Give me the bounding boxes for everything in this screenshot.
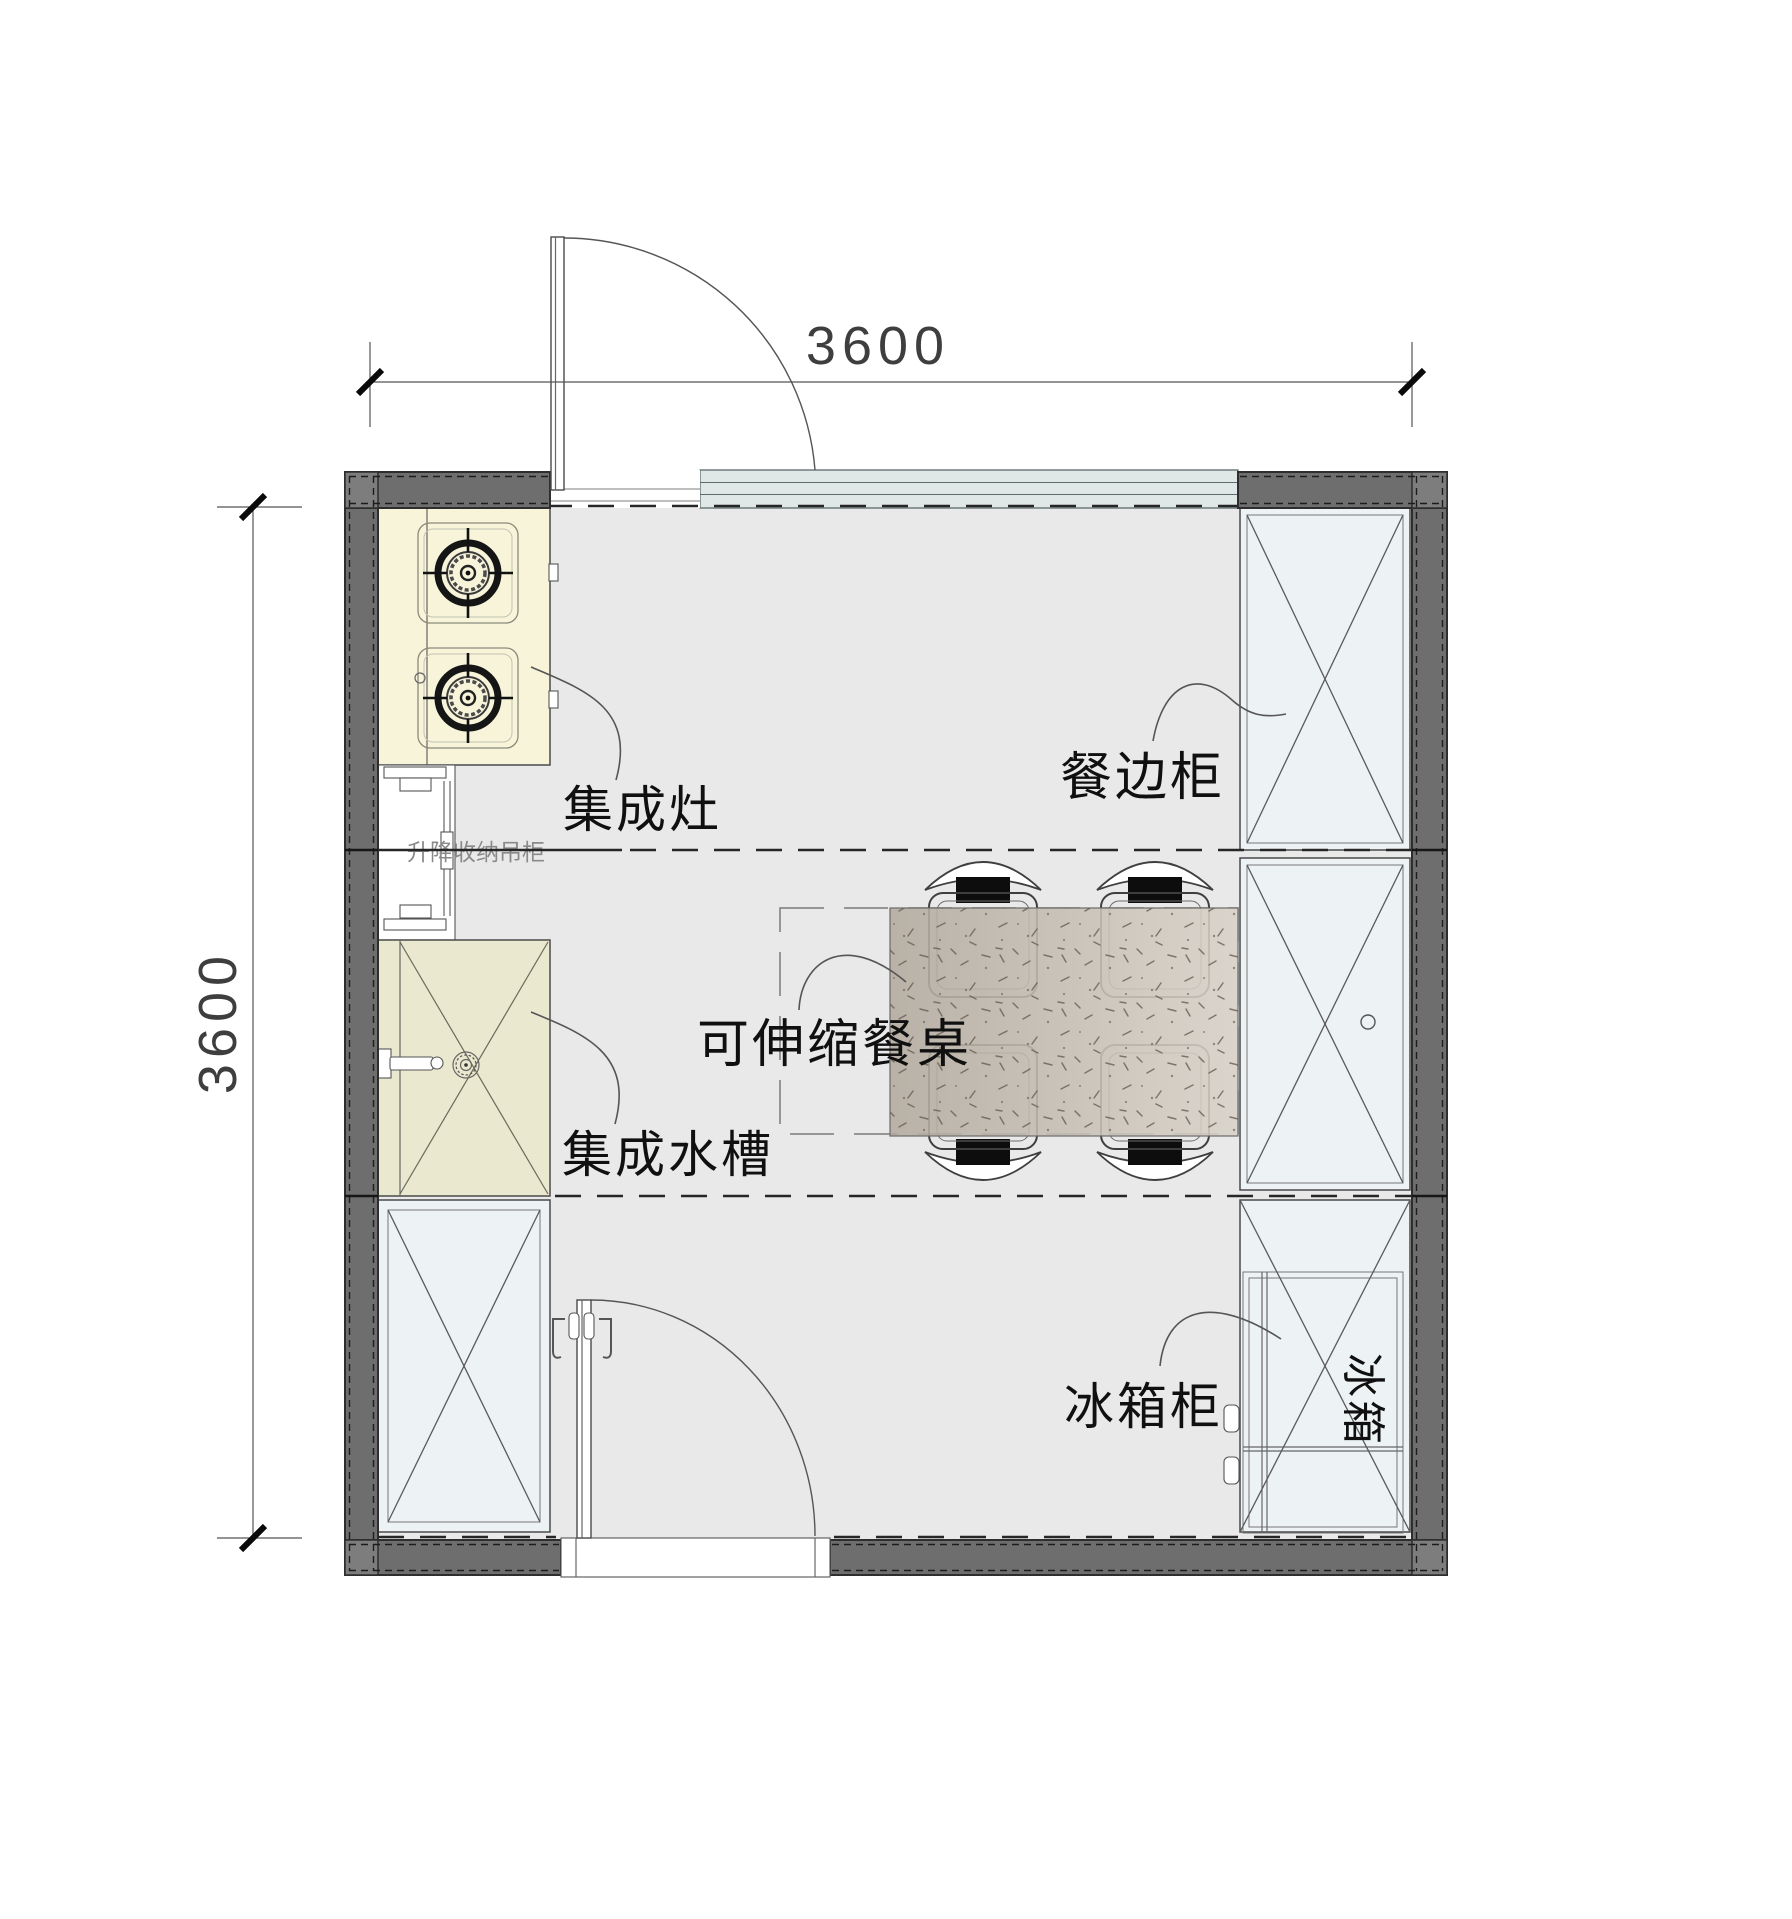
door-swing-arc [564, 238, 815, 470]
bottom-left-cabinet [378, 1200, 550, 1532]
fridge-handle-icon [1224, 1405, 1239, 1432]
table-label: 可伸缩餐桌 [697, 1015, 972, 1075]
stove-counter [378, 508, 558, 765]
top-door-opening [550, 470, 700, 508]
lift-cabinet-label: 升降收纳吊柜 [407, 840, 545, 866]
wall-bottom-right [830, 1540, 1447, 1575]
top-entry-door [551, 237, 815, 490]
sink-counter [378, 940, 550, 1196]
fridge-cabinet-label: 冰箱柜 [1064, 1378, 1223, 1436]
door-leaf [551, 237, 564, 490]
wall-right [1412, 472, 1447, 1575]
door-threshold [561, 1538, 830, 1577]
floor-plan-page: 升降收纳吊柜 [0, 0, 1792, 1919]
stove-label: 集成灶 [563, 781, 722, 839]
sideboard-cabinet [1240, 508, 1410, 850]
top-window [700, 470, 1238, 508]
dimension-top: 3600 [358, 316, 1424, 427]
fridge-handle-icon [1224, 1457, 1239, 1484]
right-middle-cabinet [1240, 858, 1410, 1190]
dimension-top-value: 3600 [806, 316, 950, 376]
dimension-left-value: 3600 [188, 950, 248, 1094]
floor-plan-drawing: 升降收纳吊柜 [0, 0, 1792, 1919]
sink-label: 集成水槽 [562, 1126, 774, 1184]
dimension-left: 3600 [188, 495, 302, 1550]
sideboard-label: 餐边柜 [1060, 748, 1225, 808]
fridge-label: 冰箱 [1337, 1353, 1388, 1447]
